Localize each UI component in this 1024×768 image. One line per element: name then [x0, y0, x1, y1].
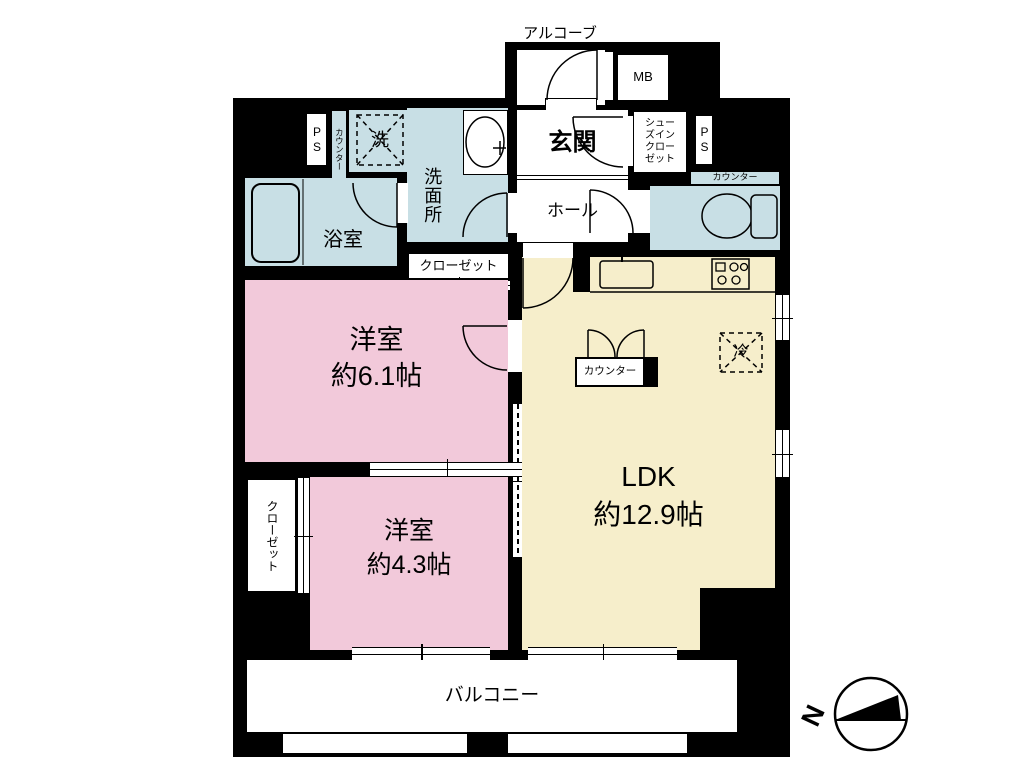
- laundry-counter: カウンター: [331, 110, 347, 188]
- washbasin-cabinet: [463, 110, 508, 175]
- alcove-label: アルコーブ: [505, 24, 615, 44]
- room-toilet: [650, 186, 780, 250]
- bathroom-label: 浴室: [293, 226, 393, 254]
- closet-lower: クローゼット: [246, 478, 297, 593]
- ldk-counter: カウンター: [575, 357, 645, 387]
- balcony-opening-left: [283, 734, 467, 753]
- toilet-doorway: [628, 190, 650, 233]
- shoe-in-closet: シュー ズイン クロー ゼット: [632, 110, 688, 174]
- compass-north-label: N: [793, 695, 836, 738]
- shoe-closet-line: ゼット: [645, 154, 675, 166]
- shoe-closet-line: ズイン: [645, 130, 675, 142]
- washer-symbol: 洗: [357, 115, 403, 165]
- western-2-size: 約4.3帖: [310, 549, 508, 583]
- shoe-closet-doorway: [627, 116, 633, 166]
- western-2-name: 洋室: [310, 515, 508, 549]
- compass-icon: [835, 678, 907, 750]
- mb-door-gap: [605, 52, 613, 100]
- ldk-right-window-2: [775, 430, 790, 477]
- washroom-doorway: [508, 193, 517, 233]
- room-hall: ホール: [517, 180, 628, 242]
- ldk-right-window-1: [775, 295, 790, 340]
- room-balcony: バルコニー: [247, 660, 737, 732]
- bathroom-doorway: [397, 183, 408, 223]
- ldk-doorway: [523, 243, 573, 258]
- pipe-space-right: PS: [694, 114, 714, 166]
- floor-plan: アルコーブ MB 玄関 ホール シュー ズイン クロー ゼット PS カウンター…: [0, 0, 1024, 768]
- kitchen-wall-stub: [573, 252, 590, 292]
- ldk-corner-wall: [700, 588, 775, 650]
- western-1-name: 洋室: [245, 322, 508, 358]
- shoe-closet-line: シュー: [645, 118, 675, 130]
- fridge-symbol: 冷: [720, 333, 762, 372]
- counter-wall-stub: [645, 357, 658, 387]
- partition-window-rooms: [370, 462, 523, 477]
- closet-upper: クローゼット: [407, 252, 510, 280]
- alcove-floor: [517, 50, 605, 105]
- ldk-name: LDK: [522, 458, 775, 496]
- western-1-label: 洋室 約6.1帖: [245, 322, 508, 395]
- room-entrance: 玄関: [517, 110, 628, 175]
- western-2-label: 洋室 約4.3帖: [310, 515, 508, 583]
- toilet-counter: カウンター: [690, 171, 780, 185]
- ldk-size: 約12.9帖: [522, 496, 775, 534]
- meter-box: MB: [618, 55, 668, 100]
- ldk-label: LDK 約12.9帖: [522, 458, 775, 534]
- washroom-label: 洗面所: [418, 145, 446, 245]
- closet-lower-sliding-door: [297, 478, 310, 593]
- balcony-opening-right: [508, 734, 687, 753]
- western-1-doorway: [508, 320, 522, 372]
- western-1-size: 約6.1帖: [245, 358, 508, 394]
- shoe-closet-line: クロー: [645, 142, 675, 154]
- pipe-space-left: PS: [305, 112, 328, 167]
